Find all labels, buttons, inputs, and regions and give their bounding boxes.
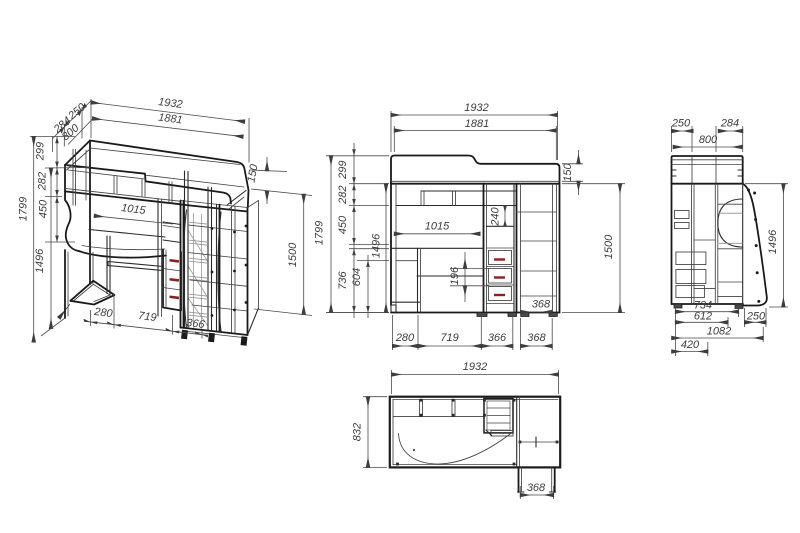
- svg-text:1496: 1496: [767, 229, 779, 254]
- svg-text:282: 282: [337, 186, 349, 205]
- svg-text:280: 280: [93, 306, 115, 320]
- svg-text:420: 420: [681, 339, 700, 351]
- svg-text:736: 736: [337, 270, 349, 289]
- svg-text:800: 800: [699, 134, 718, 146]
- svg-text:250: 250: [746, 311, 766, 323]
- svg-text:280: 280: [395, 332, 415, 344]
- svg-text:450: 450: [337, 215, 349, 234]
- svg-text:612: 612: [694, 311, 712, 323]
- svg-text:1932: 1932: [463, 361, 487, 373]
- svg-text:1082: 1082: [707, 326, 731, 338]
- svg-text:299: 299: [35, 142, 47, 161]
- svg-text:368: 368: [532, 299, 551, 311]
- svg-text:1881: 1881: [465, 118, 489, 130]
- svg-text:366: 366: [488, 332, 507, 344]
- svg-text:719: 719: [440, 332, 458, 344]
- svg-text:832: 832: [352, 423, 364, 441]
- svg-text:719: 719: [138, 310, 158, 324]
- svg-text:1799: 1799: [18, 197, 30, 221]
- svg-text:299: 299: [337, 161, 349, 180]
- svg-text:1932: 1932: [464, 102, 488, 114]
- svg-text:1496: 1496: [371, 233, 383, 258]
- svg-text:366: 366: [186, 317, 207, 331]
- svg-text:1500: 1500: [603, 234, 615, 259]
- svg-text:240: 240: [490, 206, 502, 226]
- svg-text:604: 604: [351, 268, 363, 286]
- svg-text:1015: 1015: [425, 221, 450, 233]
- svg-text:282: 282: [37, 172, 49, 191]
- svg-text:1496: 1496: [34, 248, 46, 273]
- svg-text:368: 368: [527, 482, 546, 494]
- svg-text:150: 150: [562, 162, 574, 181]
- svg-text:450: 450: [38, 199, 50, 218]
- svg-text:1500: 1500: [287, 242, 299, 267]
- svg-text:250: 250: [671, 118, 691, 130]
- svg-text:284: 284: [720, 118, 739, 130]
- svg-text:196: 196: [449, 266, 461, 285]
- svg-text:1799: 1799: [314, 221, 326, 245]
- svg-text:368: 368: [527, 332, 546, 344]
